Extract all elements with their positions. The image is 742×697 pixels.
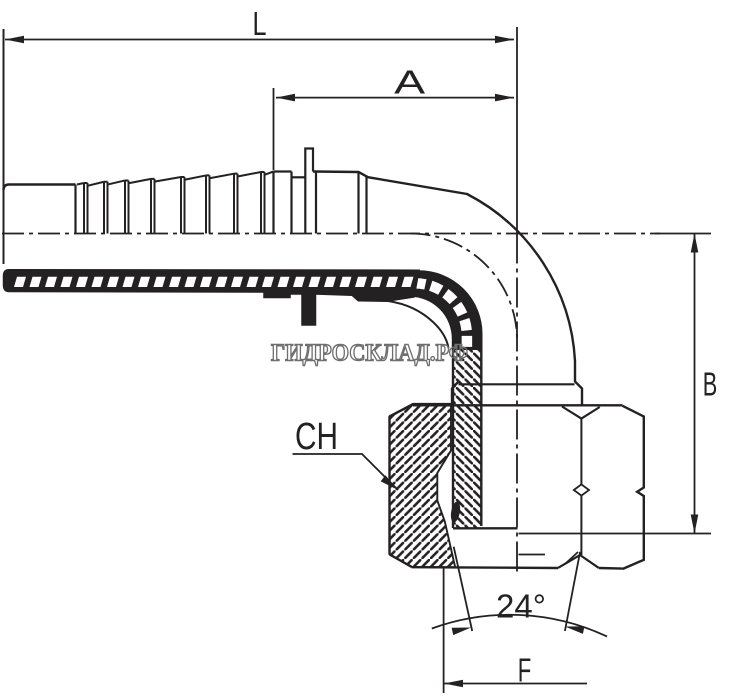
svg-text:A: A [394,63,425,100]
svg-text:L: L [253,5,267,42]
svg-text:F: F [518,652,532,689]
svg-text:B: B [703,366,718,403]
svg-text:CH: CH [295,416,338,458]
svg-text:ГИДРОСКЛАД.РФ: ГИДРОСКЛАД.РФ [271,341,468,367]
svg-text:24°: 24° [496,588,546,625]
